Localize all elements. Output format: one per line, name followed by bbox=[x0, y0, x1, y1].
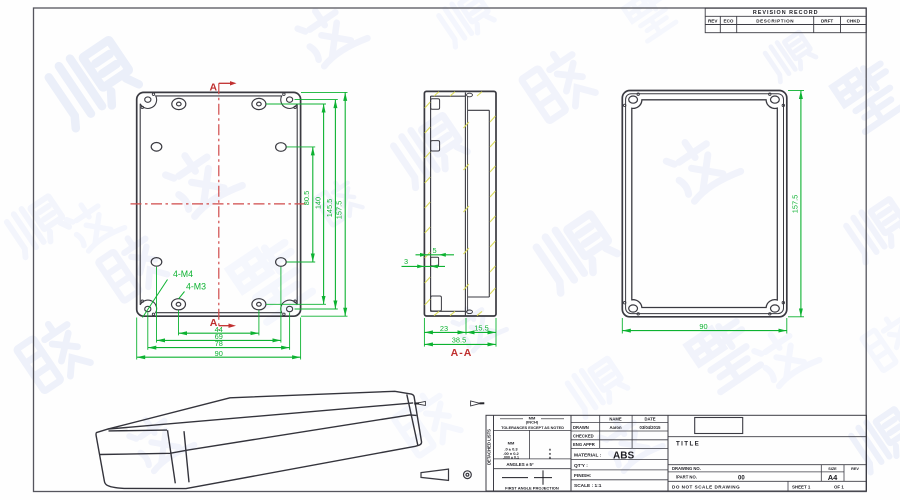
svg-text:REV: REV bbox=[851, 467, 859, 471]
svg-text:DATE: DATE bbox=[644, 417, 655, 422]
svg-text:A4: A4 bbox=[828, 473, 838, 482]
svg-text:A: A bbox=[210, 82, 218, 94]
svg-text:38.5: 38.5 bbox=[452, 335, 466, 344]
svg-text:FIRST ANGLE PROJECTION: FIRST ANGLE PROJECTION bbox=[505, 485, 559, 490]
svg-text:157.5: 157.5 bbox=[335, 201, 344, 220]
svg-text:80.5: 80.5 bbox=[302, 191, 311, 205]
svg-text:90: 90 bbox=[699, 322, 707, 331]
svg-text:3: 3 bbox=[404, 257, 408, 266]
svg-text:DO NOT SCALE DRAWING: DO NOT SCALE DRAWING bbox=[672, 484, 740, 489]
svg-text:ENG APPR: ENG APPR bbox=[573, 442, 595, 447]
svg-text:(INCH): (INCH) bbox=[526, 420, 539, 425]
svg-text:90: 90 bbox=[215, 349, 223, 358]
svg-text:78: 78 bbox=[215, 339, 223, 348]
svg-text:DRFT: DRFT bbox=[821, 18, 833, 23]
svg-text:4-M3: 4-M3 bbox=[186, 282, 206, 292]
svg-text:ECO: ECO bbox=[724, 18, 734, 23]
svg-text:CHECKED: CHECKED bbox=[573, 434, 594, 439]
svg-text:5: 5 bbox=[432, 246, 436, 255]
svg-text:TOLERANCES EXCEPT AS NOTED: TOLERANCES EXCEPT AS NOTED bbox=[501, 426, 564, 430]
svg-text:TITLE: TITLE bbox=[676, 441, 700, 448]
svg-text:03/04/2015: 03/04/2015 bbox=[640, 425, 662, 430]
svg-text:4-M4: 4-M4 bbox=[173, 269, 193, 279]
svg-text:SIZE: SIZE bbox=[828, 467, 837, 471]
svg-text:23: 23 bbox=[440, 324, 448, 333]
svg-text:145.5: 145.5 bbox=[325, 199, 334, 218]
svg-text:DRAWN: DRAWN bbox=[573, 425, 589, 430]
svg-text:.000 ± 0.1: .000 ± 0.1 bbox=[503, 455, 519, 459]
svg-text:ANGLES ± 5°: ANGLES ± 5° bbox=[506, 462, 534, 467]
svg-text:157.5: 157.5 bbox=[790, 195, 799, 214]
svg-text:ABS: ABS bbox=[613, 451, 634, 462]
svg-text:00: 00 bbox=[738, 475, 745, 481]
svg-text:140: 140 bbox=[313, 197, 322, 209]
svg-text:MM: MM bbox=[508, 441, 515, 446]
svg-text:FINISH:: FINISH: bbox=[574, 473, 592, 479]
svg-text:DESCRIPTION: DESCRIPTION bbox=[756, 18, 794, 23]
svg-text:DRAWING NO.: DRAWING NO. bbox=[672, 466, 701, 471]
svg-text:DETACHED LISTS: DETACHED LISTS bbox=[486, 429, 491, 465]
svg-text:Aaron: Aaron bbox=[609, 425, 622, 430]
svg-text:/PART NO.: /PART NO. bbox=[676, 474, 697, 479]
svg-text:MATERIAL :: MATERIAL : bbox=[574, 453, 602, 459]
svg-text:REV: REV bbox=[708, 18, 718, 23]
svg-text:SCALE : 1:1: SCALE : 1:1 bbox=[574, 483, 602, 489]
svg-text:REVISION RECORD: REVISION RECORD bbox=[753, 10, 819, 16]
svg-text:QT'Y :: QT'Y : bbox=[574, 463, 588, 469]
svg-text:NAME: NAME bbox=[609, 417, 622, 422]
svg-text:SHEET 1: SHEET 1 bbox=[792, 484, 811, 489]
svg-text:15.5: 15.5 bbox=[474, 324, 488, 333]
svg-text:OF 1: OF 1 bbox=[834, 484, 844, 489]
svg-text:CHKD: CHKD bbox=[847, 18, 861, 23]
svg-text:A-A: A-A bbox=[451, 347, 473, 359]
